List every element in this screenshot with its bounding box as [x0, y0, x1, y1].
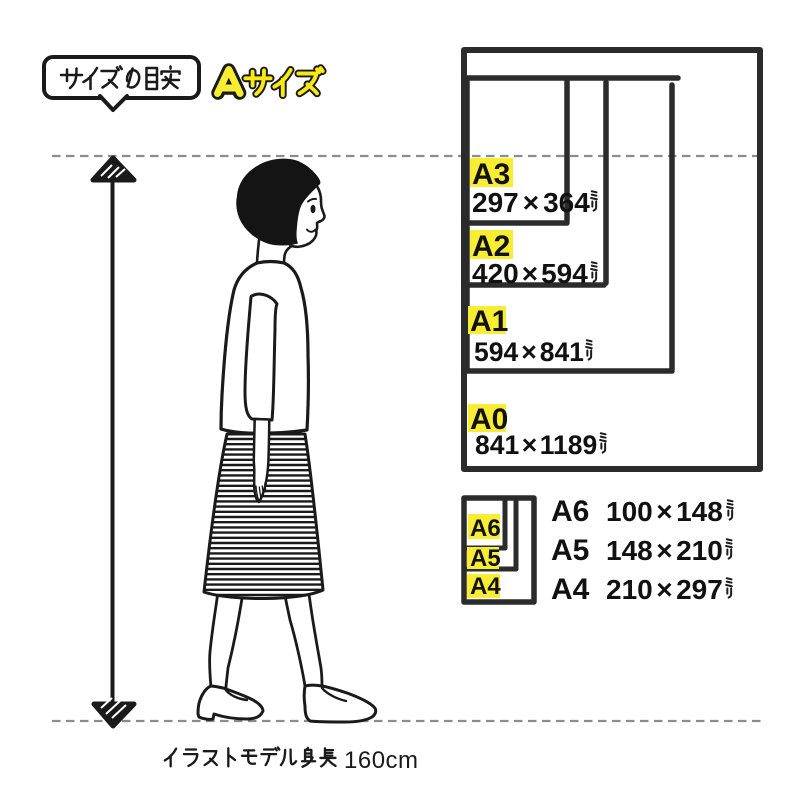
svg-text:A5: A5 [470, 545, 501, 572]
svg-text:A4: A4 [470, 573, 501, 600]
svg-text:210×297: 210×297 [606, 574, 723, 605]
svg-text:A1: A1 [470, 305, 508, 338]
svg-text:297×364: 297×364 [472, 187, 590, 218]
svg-text:A4: A4 [551, 573, 590, 606]
svg-text:A5: A5 [551, 534, 589, 567]
svg-text:A6: A6 [470, 515, 501, 542]
svg-text:841×1189: 841×1189 [475, 430, 597, 460]
svg-text:160cm: 160cm [344, 747, 419, 774]
svg-text:594×841: 594×841 [474, 337, 584, 367]
svg-text:100×148: 100×148 [606, 496, 723, 527]
svg-text:A6: A6 [551, 495, 589, 528]
svg-text:420×594: 420×594 [472, 258, 588, 289]
svg-text:148×210: 148×210 [606, 535, 723, 566]
